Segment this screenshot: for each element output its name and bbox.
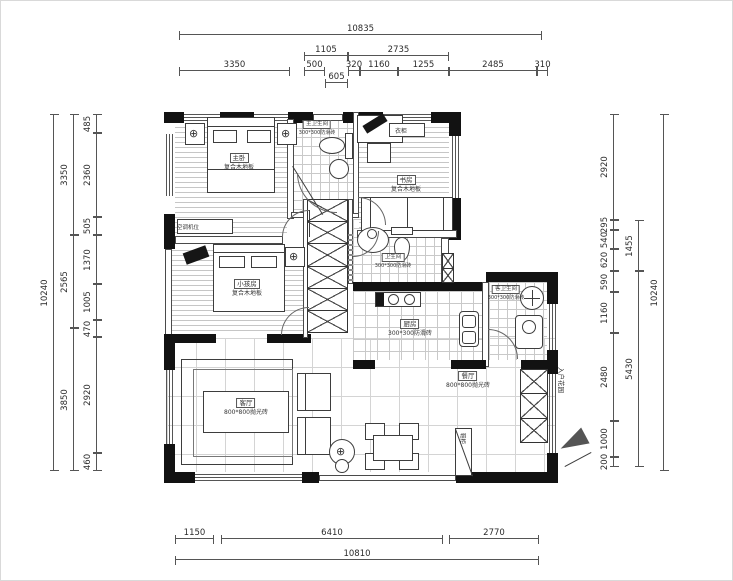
sink-basin	[462, 331, 476, 344]
room-floor: 300*300防滑砖	[299, 130, 336, 137]
dim: 1455	[638, 220, 639, 271]
dim: 590	[613, 271, 614, 292]
dim: 2485	[449, 70, 537, 71]
room-name: 主卧	[229, 153, 248, 163]
dim: 500	[304, 70, 325, 71]
dim: 2770	[449, 538, 539, 539]
washer-drum	[522, 320, 536, 334]
dim: 310	[537, 70, 548, 71]
room-name: 客卫生间	[492, 285, 520, 294]
dim: 460	[96, 453, 97, 471]
window	[166, 370, 173, 444]
flower-icon: ⊕	[281, 128, 290, 139]
dim: 3350	[73, 114, 74, 235]
dim: 2565	[73, 235, 74, 328]
room-name: 主卫生间	[303, 120, 331, 129]
corridor-wardrobe	[307, 199, 348, 333]
wall-segment	[164, 112, 184, 123]
dim: 1160	[613, 292, 614, 333]
dim: 1150	[175, 538, 214, 539]
room-name: 卫生间	[382, 253, 405, 262]
room-floor: 800*800抛光砖	[224, 409, 268, 417]
dim: 485	[96, 114, 97, 133]
window	[549, 374, 556, 453]
wall-thin	[165, 249, 172, 336]
dim: 320	[348, 70, 360, 71]
window	[452, 136, 459, 198]
room-floor: 复合木地板	[224, 164, 254, 172]
kids-bed-headboard	[213, 244, 285, 253]
armchair-line	[305, 374, 306, 410]
window	[166, 134, 173, 196]
dining-table	[373, 435, 413, 461]
wall-thin	[319, 475, 456, 481]
dim-left-total: 10240	[53, 114, 54, 471]
room-name: 客厅	[237, 398, 256, 408]
floor-plan-canvas: ⊕ ⊕ 衣柜 ⊕ ⊕	[0, 0, 733, 581]
dim-bottom-total: 10810	[175, 559, 539, 560]
dim: 540	[613, 230, 614, 249]
room-name: 书房	[396, 175, 415, 185]
dim: 2360	[96, 133, 97, 217]
dim: 1160	[360, 70, 398, 71]
wall-segment	[451, 360, 486, 369]
armchair-line	[305, 418, 306, 454]
sofa-cushion-line	[407, 198, 408, 230]
room-label-guest-bath: 客卫生间 300*300防滑砖	[488, 285, 525, 302]
dim: 3850	[73, 328, 74, 471]
window	[549, 304, 556, 350]
pillow	[247, 130, 271, 143]
study-chair	[367, 143, 391, 163]
armchair	[297, 373, 331, 411]
wall-segment	[164, 214, 175, 249]
room-label-living: 客厅 800*800抛光砖	[224, 398, 268, 417]
dim: 200	[613, 457, 614, 467]
dim: 1105	[304, 55, 348, 56]
dim-top-total: 10835	[179, 34, 542, 35]
sink-basin	[462, 315, 476, 328]
dim: 2480	[613, 333, 614, 421]
armchair	[297, 417, 331, 455]
entry-garden-label: 入户花园	[557, 367, 567, 393]
wall-segment	[547, 453, 558, 483]
wall-segment	[547, 272, 558, 304]
wall-segment	[353, 360, 375, 369]
room-name: 餐厅	[459, 371, 478, 381]
room-label-master-bath: 主卫生间 300*300防滑砖	[299, 120, 336, 137]
wall-thin	[175, 236, 283, 244]
sofa-armrest	[443, 197, 453, 231]
wardrobe-label: 衣柜	[395, 126, 407, 135]
wall-segment	[521, 360, 558, 369]
toilet-bowl	[319, 137, 345, 154]
room-label-study: 书房 复合木地板	[391, 175, 421, 194]
pillow	[251, 256, 277, 268]
burner	[388, 294, 399, 305]
dim: 2920	[613, 114, 614, 220]
entry-arrow-icon	[556, 427, 589, 456]
room-floor: 复合木地板	[391, 186, 421, 194]
room-label-master: 主卧 复合木地板	[224, 153, 254, 172]
dim: 1005	[96, 284, 97, 320]
dim: 3350	[179, 70, 290, 71]
basin-cross	[532, 290, 533, 306]
flower-icon: ⊕	[289, 251, 298, 262]
dim: 1370	[96, 235, 97, 284]
wall-segment	[353, 282, 486, 291]
plant	[335, 459, 349, 473]
wall-segment	[302, 472, 319, 483]
pillow	[213, 130, 237, 143]
burner	[404, 294, 415, 305]
dim: 1000	[613, 421, 614, 457]
dim: 505	[96, 217, 97, 235]
room-name: 小孩房	[234, 279, 260, 289]
dim: 5430	[638, 271, 639, 467]
dim: 6410	[221, 538, 443, 539]
dim: 470	[96, 320, 97, 337]
wall-segment	[164, 472, 195, 483]
wall-segment	[164, 338, 175, 370]
room-label-dining: 餐厅 800*800抛光砖	[446, 371, 490, 390]
room-label-kitchen: 厨房 300*300防滑砖	[388, 319, 432, 338]
ac-unit-label: 空调机位	[177, 223, 199, 231]
room-name: 厨房	[401, 319, 420, 329]
room-floor: 复合木地板	[232, 290, 262, 298]
dining-cabinet	[520, 369, 548, 443]
door-leaf	[309, 210, 310, 237]
room-label-hall-bath: 卫生间 300*300防滑砖	[375, 253, 412, 270]
shoe-cabinet-label: 鞋柜	[459, 433, 467, 444]
room-floor: 800*800抛光砖	[446, 382, 490, 390]
room-floor: 300*300防滑砖	[375, 263, 412, 270]
dim: 2920	[96, 337, 97, 453]
room-floor: 300*300防滑砖	[488, 295, 525, 302]
flower-icon: ⊕	[189, 128, 198, 139]
dim: 605	[325, 82, 348, 83]
room-floor: 300*300防滑砖	[388, 330, 432, 338]
dim-right-total: 10240	[663, 114, 664, 471]
toilet-tank	[345, 133, 353, 159]
dim: 2735	[348, 55, 449, 56]
pillow	[219, 256, 245, 268]
stove-panel	[376, 293, 384, 306]
dim: 295	[613, 220, 614, 230]
window	[195, 474, 302, 481]
dim: 1255	[398, 70, 449, 71]
room-label-kids: 小孩房 复合木地板	[232, 279, 262, 298]
flower-icon: ⊕	[336, 446, 345, 457]
master-bed-headboard	[207, 117, 275, 127]
duct-shaft	[442, 253, 454, 283]
kids-bed	[213, 244, 285, 312]
dim: 620	[613, 249, 614, 271]
wall-segment	[449, 112, 461, 136]
toilet-tank	[391, 227, 413, 235]
